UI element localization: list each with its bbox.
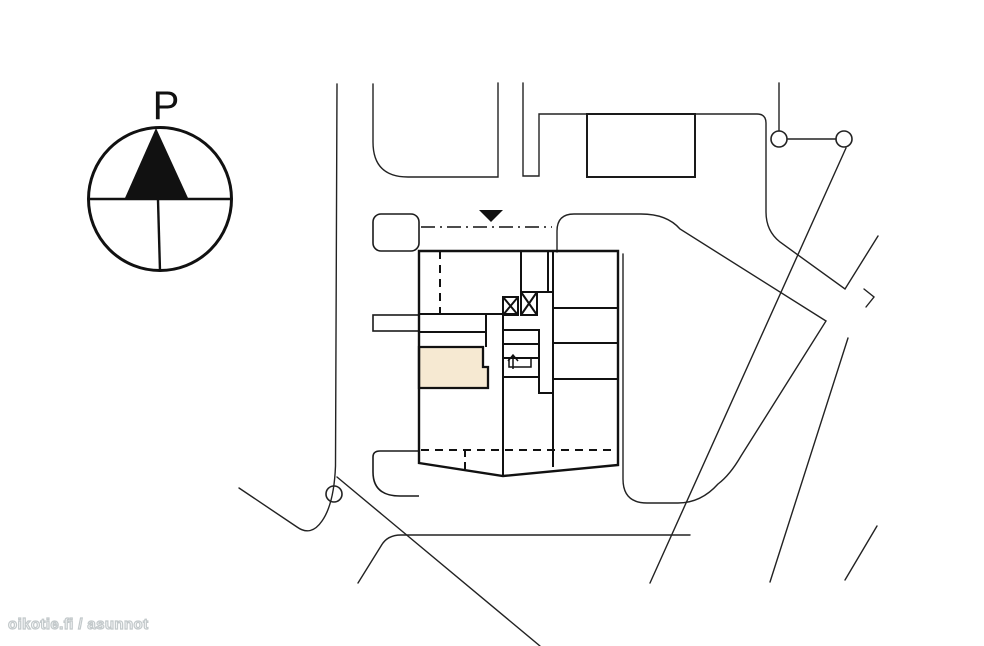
road-lines	[239, 83, 878, 646]
road-diagonal-3	[845, 526, 877, 580]
stair-box	[503, 330, 539, 377]
stair-treads	[503, 344, 539, 358]
stairwell	[503, 330, 539, 377]
road-bottom-horizontal	[358, 535, 690, 583]
compass-north-needle	[125, 128, 188, 198]
yard-outline	[557, 214, 826, 503]
plot-corner-mark	[864, 289, 874, 307]
curb-top-middle	[523, 83, 587, 176]
watermark-text: oikotie.fi / asunnot	[8, 616, 149, 633]
highlighted-unit	[419, 347, 488, 388]
road-left-vertical	[239, 84, 337, 531]
annex-top-left	[373, 214, 419, 251]
neighbour-building	[587, 114, 695, 177]
road-diagonal-2	[770, 338, 848, 582]
curb-top-left	[373, 83, 498, 177]
road-diagonal-bottom-left	[337, 477, 540, 646]
entrance-triangle-marker	[479, 210, 503, 222]
building-annexes	[373, 214, 419, 496]
compass-rose	[89, 128, 232, 272]
annex-bottom-left	[373, 451, 419, 496]
annex-left-stub	[373, 315, 419, 331]
survey-points	[326, 131, 852, 502]
compass-south-axis	[158, 200, 160, 271]
survey-point-circle	[771, 131, 787, 147]
road-diagonal-long	[650, 148, 846, 583]
compass-north-label: P	[148, 86, 184, 126]
main-building	[419, 251, 618, 476]
elevator-icon	[521, 292, 537, 315]
elevator-icon	[503, 297, 518, 315]
site-plan-image: P oikotie.fi / asunnot	[0, 0, 984, 646]
elevator-shafts	[503, 292, 537, 315]
survey-point-circle	[836, 131, 852, 147]
